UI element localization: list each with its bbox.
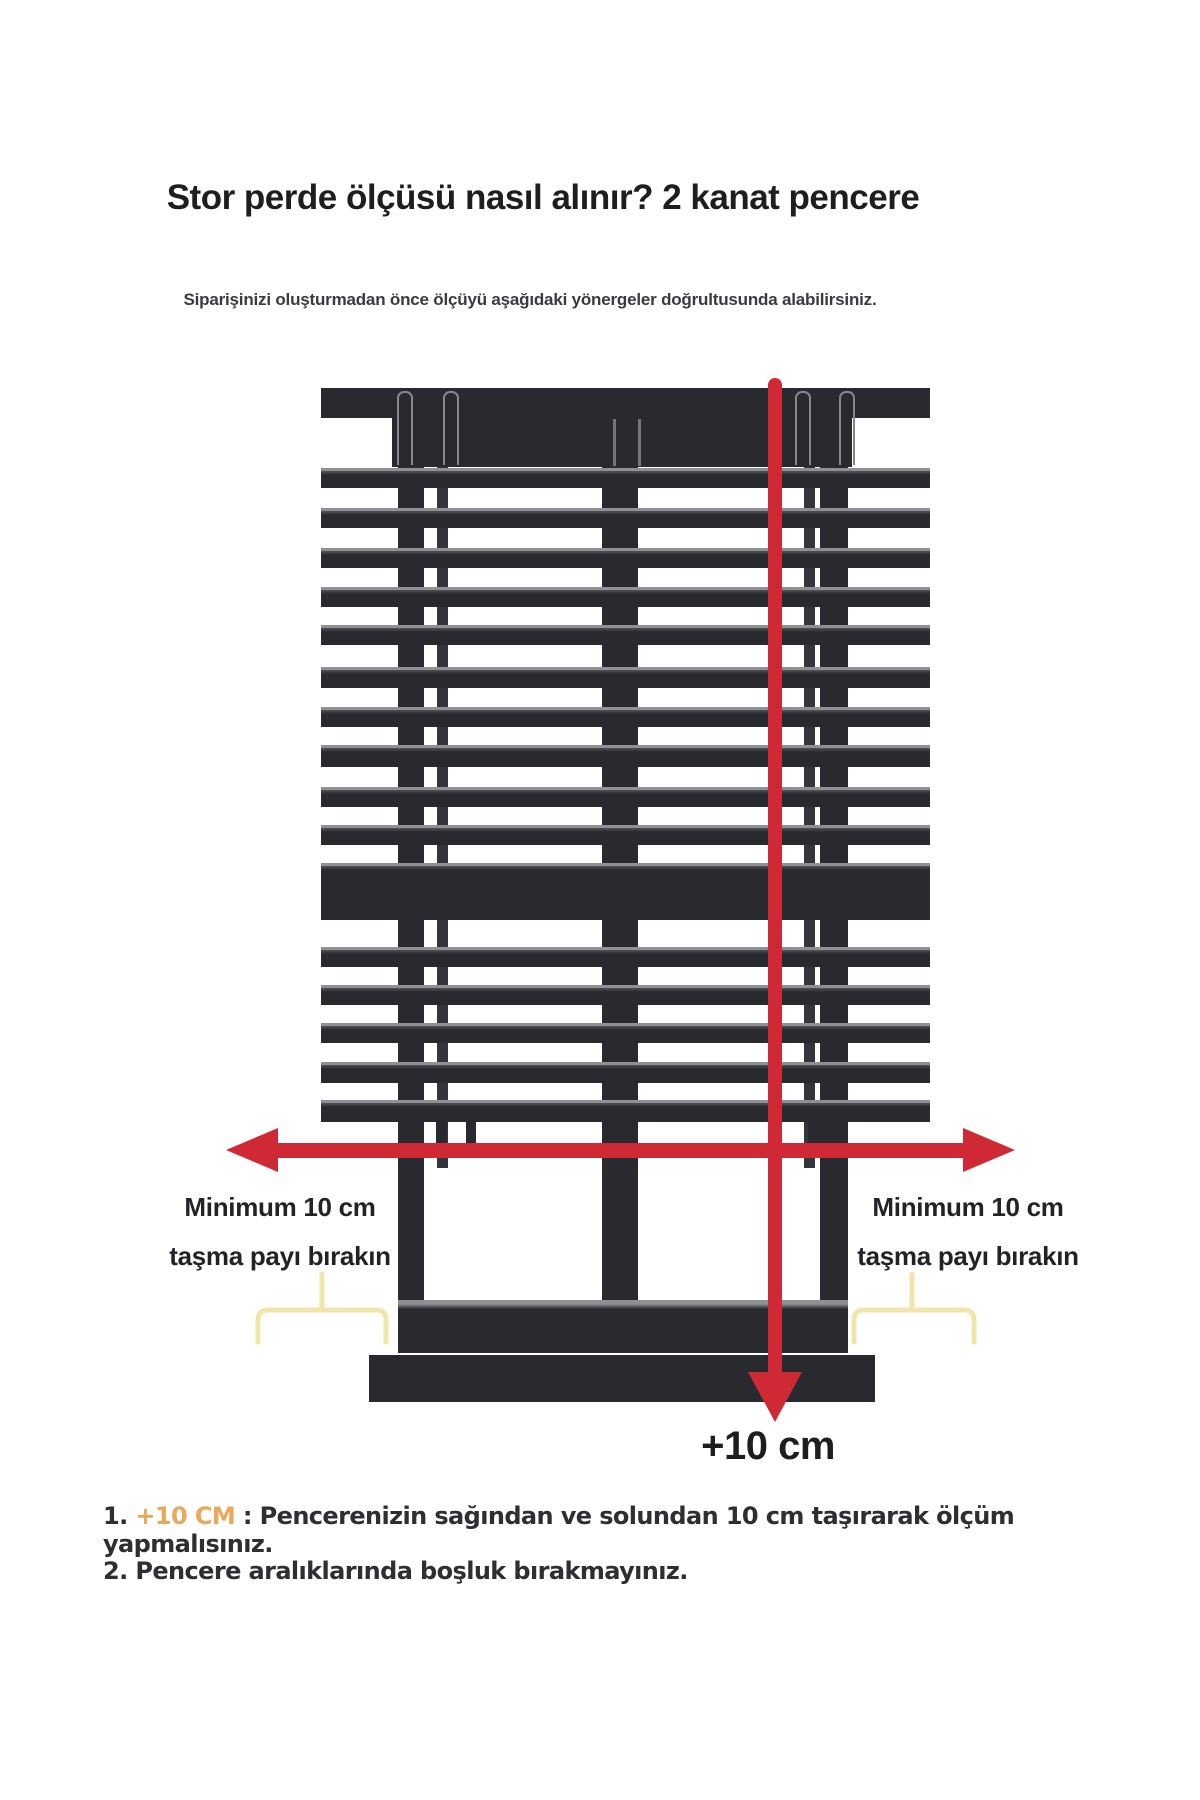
- blind-rolled-fabric: [392, 417, 852, 467]
- overhang-label-left: Minimum 10 cm taşma payı bırakın: [120, 1183, 440, 1281]
- blind-slat: [321, 508, 930, 528]
- overhang-bracket-left: [250, 1270, 395, 1348]
- note-2: 2. Pencere aralıklarında boşluk bırakmay…: [103, 1557, 1183, 1585]
- blind-slat: [321, 548, 930, 568]
- bracket-loop-2: [443, 391, 459, 465]
- blind-slat: [321, 1100, 930, 1122]
- mullion-seam-left: [613, 419, 616, 466]
- blind-slat: [321, 587, 930, 607]
- width-measure-arrowhead-right: [963, 1128, 1015, 1172]
- blind-slat: [321, 787, 930, 807]
- width-measure-arrowhead-left: [226, 1128, 278, 1172]
- blind-slat: [321, 947, 930, 967]
- measurement-guide-page: Stor perde ölçüsü nasıl alınır? 2 kanat …: [0, 0, 1200, 1800]
- bracket-loop-4: [839, 391, 855, 465]
- overhang-label-right-line1: Minimum 10 cm: [808, 1183, 1128, 1232]
- width-measure-arrow-shaft: [268, 1143, 978, 1158]
- blind-slat: [321, 1023, 930, 1043]
- blind-slat: [321, 707, 930, 727]
- blind-slat: [321, 1062, 930, 1083]
- mullion-seam-right: [638, 419, 641, 466]
- page-title: Stor perde ölçüsü nasıl alınır? 2 kanat …: [0, 178, 1086, 218]
- blind-slat: [321, 863, 930, 920]
- blind-slat: [321, 825, 930, 845]
- overhang-label-left-line1: Minimum 10 cm: [120, 1183, 440, 1232]
- blind-slat: [321, 667, 930, 688]
- blind-slat: [321, 745, 930, 767]
- overhang-label-right: Minimum 10 cm taşma payı bırakın: [808, 1183, 1128, 1281]
- bracket-loop-1: [397, 391, 413, 465]
- height-measure-arrowhead-down: [748, 1372, 802, 1422]
- blind-slat: [321, 985, 930, 1005]
- height-measure-arrow-shaft: [768, 378, 782, 1374]
- bottom-extension-label: +10 cm: [648, 1424, 888, 1469]
- note-1-text: : Pencerenizin sağından ve solundan 10 c…: [103, 1502, 1014, 1558]
- blind-slat: [321, 625, 930, 645]
- note-1: 1. +10 CM : Pencerenizin sağından ve sol…: [103, 1502, 1183, 1558]
- bracket-loop-3: [795, 391, 811, 465]
- overhang-bracket-right: [846, 1270, 981, 1348]
- page-subtitle: Siparişinizi oluşturmadan önce ölçüyü aş…: [0, 290, 1060, 310]
- note-1-number: 1.: [103, 1502, 135, 1530]
- blind-slat: [321, 468, 930, 488]
- note-1-highlight: +10 CM: [135, 1502, 235, 1530]
